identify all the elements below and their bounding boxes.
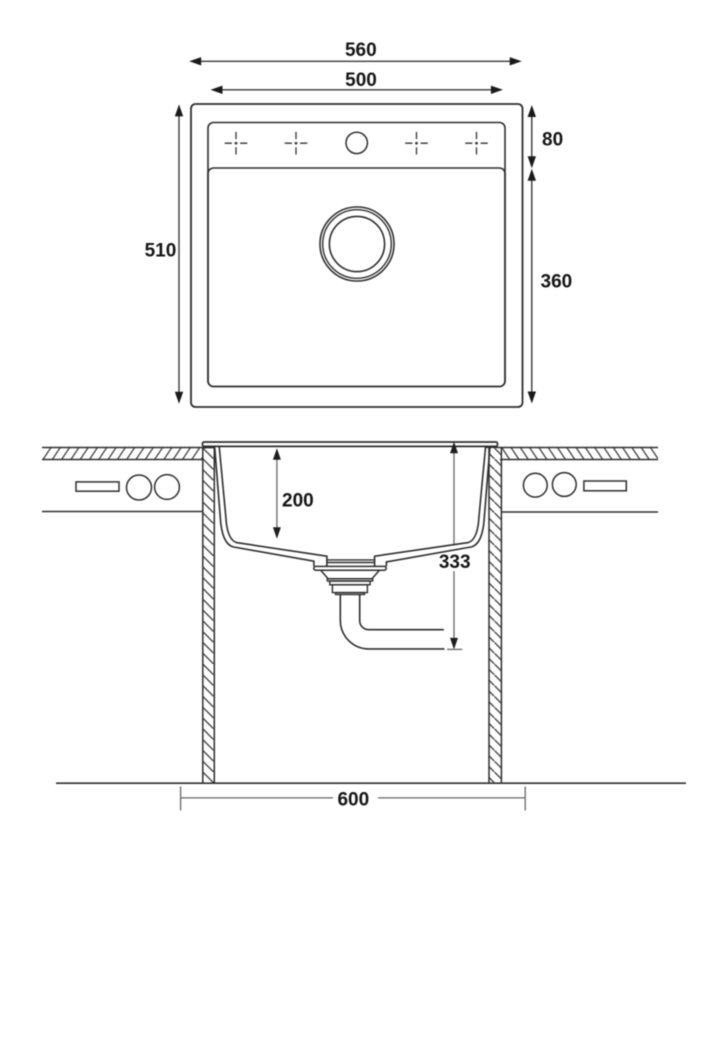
svg-text:500: 500 (345, 70, 377, 91)
svg-text:510: 510 (145, 241, 177, 262)
svg-text:360: 360 (541, 272, 573, 293)
svg-text:200: 200 (282, 491, 314, 512)
svg-text:560: 560 (345, 40, 377, 61)
svg-text:333: 333 (439, 552, 471, 573)
svg-text:600: 600 (337, 790, 369, 811)
svg-text:80: 80 (542, 130, 563, 151)
